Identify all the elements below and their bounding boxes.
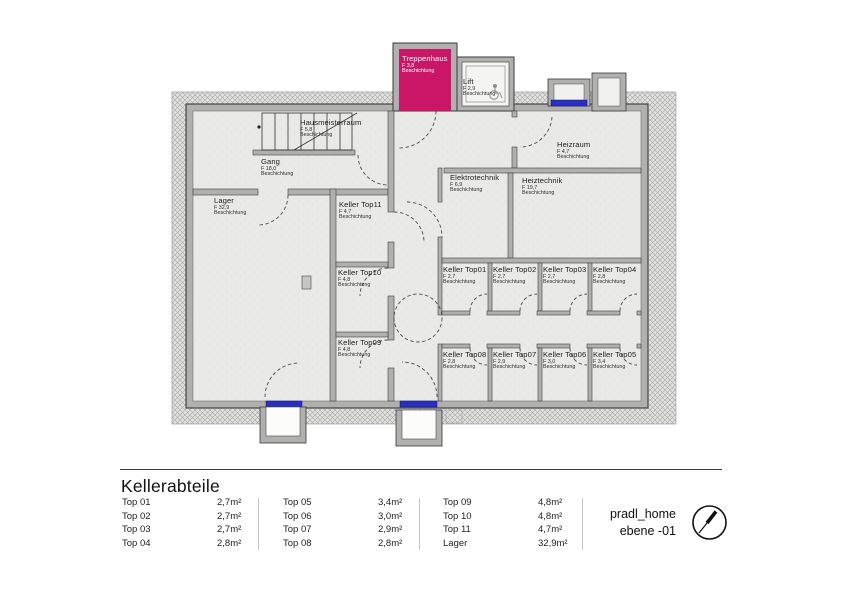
- legend: Kellerabteile Top 012,7m² Top 022,7m² To…: [0, 462, 842, 595]
- legend-column-1: Top 012,7m² Top 022,7m² Top 032,7m² Top …: [122, 496, 241, 550]
- divider: [120, 469, 722, 470]
- divider: [258, 498, 259, 550]
- legend-row: Top 072,9m²: [283, 523, 402, 537]
- page-title: Kellerabteile: [121, 476, 220, 497]
- divider: [419, 498, 420, 550]
- project-title-block: pradl_home ebene -01: [610, 506, 676, 540]
- legend-row: Top 042,8m²: [122, 537, 241, 551]
- floor-plan-drawing: [0, 0, 842, 475]
- floor-plan-sheet: Treppenhaus F 3,8 Beschichtung Lift F 2,…: [0, 0, 842, 595]
- north-arrow-icon: [691, 504, 728, 541]
- level-name: ebene -01: [610, 523, 676, 540]
- legend-row: Top 094,8m²: [443, 496, 568, 510]
- legend-row: Top 032,7m²: [122, 523, 241, 537]
- stairwell-treppenhaus: [393, 43, 457, 111]
- legend-row: Top 053,4m²: [283, 496, 402, 510]
- basement-floor-plan: Treppenhaus F 3,8 Beschichtung Lift F 2,…: [0, 0, 842, 475]
- legend-column-2: Top 053,4m² Top 063,0m² Top 072,9m² Top …: [283, 496, 402, 550]
- legend-row: Top 063,0m²: [283, 510, 402, 524]
- window-heizraum: [551, 100, 587, 106]
- legend-row: Top 114,7m²: [443, 523, 568, 537]
- building-outline: [186, 104, 648, 408]
- legend-row: Top 082,8m²: [283, 537, 402, 551]
- legend-column-3: Top 094,8m² Top 104,8m² Top 114,7m² Lage…: [443, 496, 568, 550]
- column: [302, 276, 311, 289]
- legend-row: Top 104,8m²: [443, 510, 568, 524]
- lift-shaft: [457, 57, 514, 111]
- legend-row: Lager32,9m²: [443, 537, 568, 551]
- light-wells-top: [548, 73, 626, 111]
- legend-row: Top 012,7m²: [122, 496, 241, 510]
- legend-row: Top 022,7m²: [122, 510, 241, 524]
- divider: [582, 498, 583, 550]
- project-name: pradl_home: [610, 506, 676, 523]
